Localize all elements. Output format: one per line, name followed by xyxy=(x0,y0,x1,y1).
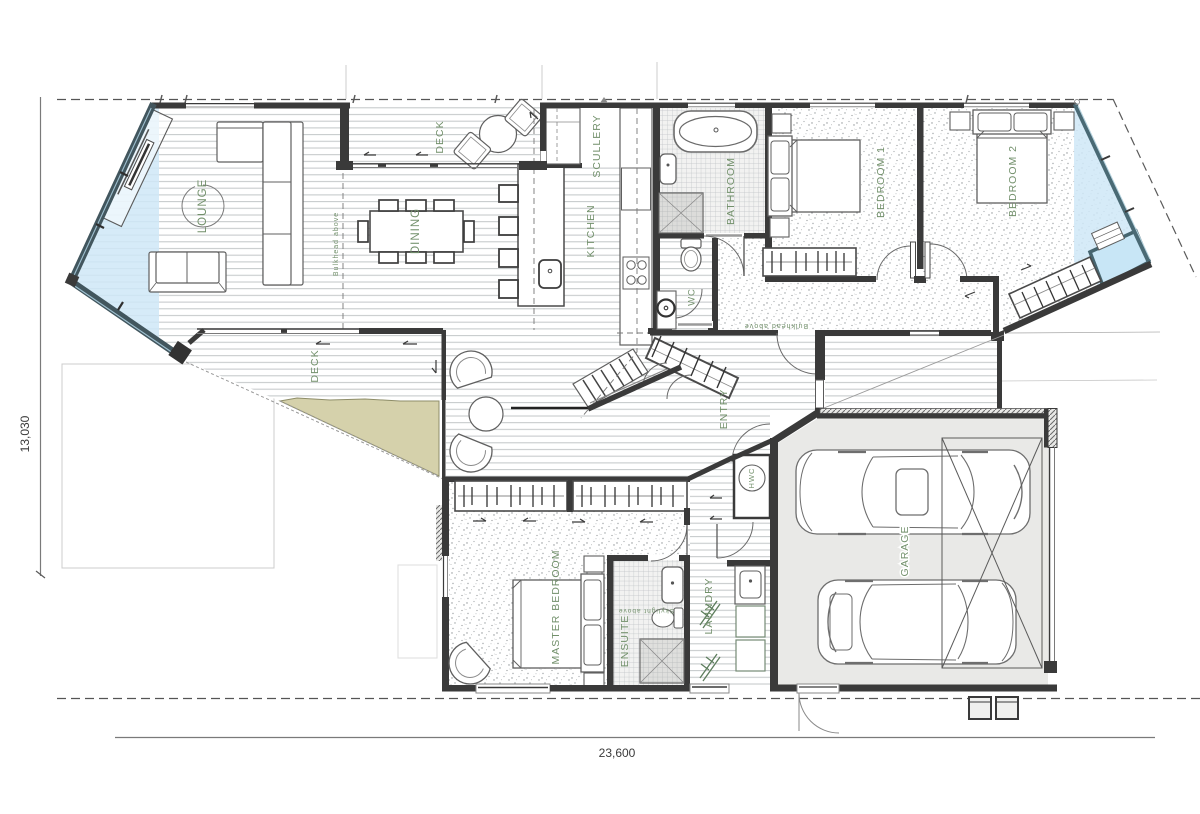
svg-text:Bulkhead above: Bulkhead above xyxy=(744,322,808,329)
svg-text:WC: WC xyxy=(687,288,698,306)
svg-text:Skylight above: Skylight above xyxy=(618,607,674,614)
svg-text:SCULLERY: SCULLERY xyxy=(591,114,603,177)
svg-text:LOUNGE: LOUNGE xyxy=(197,179,209,234)
svg-text:ENSUITE: ENSUITE xyxy=(619,615,631,668)
svg-text:23,600: 23,600 xyxy=(599,746,636,760)
svg-text:HWC: HWC xyxy=(747,468,756,489)
svg-text:BEDROOM 1: BEDROOM 1 xyxy=(875,146,887,218)
svg-text:DECK: DECK xyxy=(434,120,446,153)
svg-text:13,030: 13,030 xyxy=(18,415,32,452)
svg-text:KITCHEN: KITCHEN xyxy=(585,204,597,257)
svg-text:GARAGE: GARAGE xyxy=(899,526,911,577)
svg-text:MASTER BEDROOM: MASTER BEDROOM xyxy=(550,550,562,665)
svg-text:BATHROOM: BATHROOM xyxy=(725,157,737,225)
svg-text:DECK: DECK xyxy=(309,349,321,382)
svg-text:ENTRY: ENTRY xyxy=(718,389,730,429)
svg-text:BEDROOM 2: BEDROOM 2 xyxy=(1007,145,1019,217)
svg-text:Bulkhead above: Bulkhead above xyxy=(333,212,340,276)
svg-text:DINING: DINING xyxy=(410,208,422,254)
svg-text:LAUNDRY: LAUNDRY xyxy=(703,578,715,635)
